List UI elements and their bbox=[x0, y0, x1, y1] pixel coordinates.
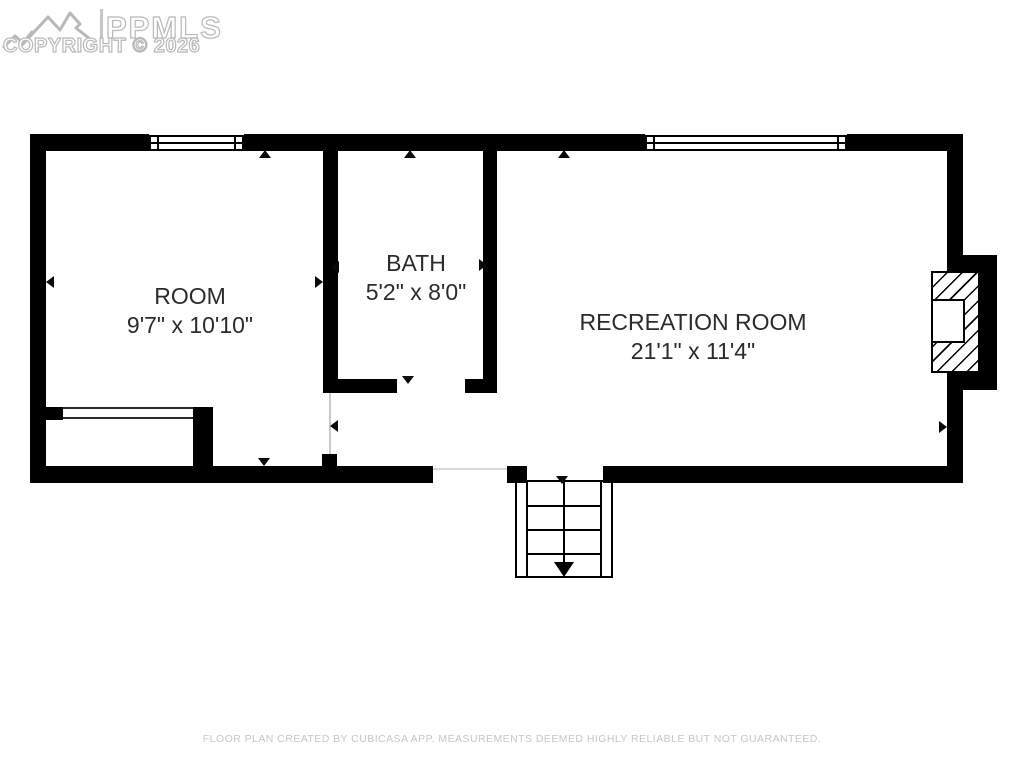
bath-label: BATH 5'2" x 8'0" bbox=[366, 249, 467, 307]
wall-hall-stub bbox=[322, 454, 337, 466]
wall-closet-right bbox=[193, 407, 213, 467]
wall-right-upper bbox=[947, 134, 963, 255]
wall-bottom-left bbox=[30, 466, 433, 483]
wall-marker-icon bbox=[46, 276, 54, 288]
room-label: ROOM 9'7" x 10'10" bbox=[127, 282, 253, 340]
wall-marker-icon bbox=[402, 376, 414, 384]
window-pane-line bbox=[647, 142, 845, 144]
stairs-down bbox=[515, 480, 613, 578]
room-name: BATH bbox=[366, 249, 467, 278]
wall-bath-right bbox=[483, 151, 497, 393]
window-room bbox=[149, 135, 244, 151]
stair-stringer-right bbox=[600, 482, 602, 576]
room-name: ROOM bbox=[127, 282, 253, 311]
wall-stair-stub bbox=[507, 466, 527, 483]
wall-top-middle bbox=[244, 134, 645, 151]
window-recreation bbox=[645, 135, 847, 151]
fireplace-firebox bbox=[931, 299, 965, 343]
room-name: RECREATION ROOM bbox=[579, 308, 806, 337]
wall-marker-icon bbox=[558, 150, 570, 158]
recreation-room-label: RECREATION ROOM 21'1" x 11'4" bbox=[579, 308, 806, 366]
wall-closet-stub bbox=[46, 407, 63, 420]
wall-marker-icon bbox=[330, 420, 338, 432]
wall-marker-icon bbox=[331, 261, 339, 273]
wall-marker-icon bbox=[258, 458, 270, 466]
wall-marker-icon bbox=[939, 421, 947, 433]
wall-marker-icon bbox=[556, 476, 568, 484]
floor-plan-page: PPMLS COPYRIGHT © 2026 bbox=[0, 0, 1024, 767]
wall-bath-bottom-right bbox=[465, 379, 497, 393]
wall-top-left bbox=[30, 134, 149, 151]
stair-doorway-line bbox=[433, 468, 507, 470]
wall-marker-icon bbox=[479, 259, 487, 271]
stair-direction-line bbox=[563, 482, 565, 566]
wall-marker-icon bbox=[315, 276, 323, 288]
wall-marker-icon bbox=[259, 150, 271, 158]
disclaimer-text: FLOOR PLAN CREATED BY CUBICASA APP. MEAS… bbox=[0, 733, 1024, 745]
wall-bath-bottom-left bbox=[323, 379, 397, 393]
copyright-text: COPYRIGHT © 2026 bbox=[3, 35, 200, 58]
wall-marker-icon bbox=[404, 150, 416, 158]
room-dimensions: 21'1" x 11'4" bbox=[579, 337, 806, 366]
stair-down-arrow-icon bbox=[554, 562, 574, 577]
room-dimensions: 9'7" x 10'10" bbox=[127, 311, 253, 340]
window-pane-line bbox=[151, 142, 242, 144]
wall-left bbox=[30, 134, 46, 483]
wall-top-right bbox=[847, 134, 963, 151]
closet-opening bbox=[63, 407, 193, 419]
room-dimensions: 5'2" x 8'0" bbox=[366, 278, 467, 307]
wall-bottom-right bbox=[603, 466, 963, 483]
